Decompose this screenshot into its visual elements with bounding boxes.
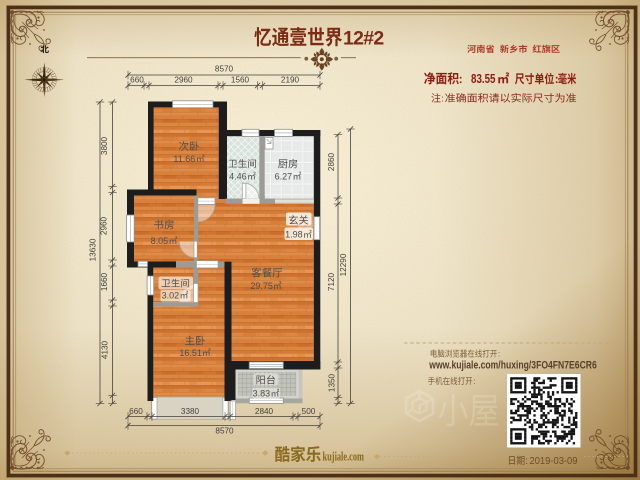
svg-text:2190: 2190 xyxy=(281,76,300,85)
svg-text::: : xyxy=(473,376,475,386)
svg-text:13630: 13630 xyxy=(89,238,98,261)
svg-text:1350: 1350 xyxy=(328,373,337,392)
svg-text:8570: 8570 xyxy=(215,65,234,74)
svg-text:1560: 1560 xyxy=(231,76,250,85)
svg-text:kujiale.com: kujiale.com xyxy=(323,449,365,464)
svg-text:3800: 3800 xyxy=(100,136,109,155)
svg-text::: : xyxy=(525,456,528,467)
svg-text:7120: 7120 xyxy=(327,272,336,291)
svg-text:11.66: 11.66 xyxy=(173,154,195,164)
svg-text:3.83: 3.83 xyxy=(253,389,271,399)
svg-text:2860: 2860 xyxy=(327,152,336,171)
svg-text:3.02: 3.02 xyxy=(162,291,180,301)
svg-text:660: 660 xyxy=(129,407,143,416)
svg-text:29.75: 29.75 xyxy=(250,281,273,291)
svg-text:1.98: 1.98 xyxy=(285,230,303,240)
svg-text:3380: 3380 xyxy=(181,407,200,416)
svg-text:4.46: 4.46 xyxy=(229,172,247,182)
svg-text:83.55: 83.55 xyxy=(471,71,496,86)
svg-text:12290: 12290 xyxy=(339,253,348,276)
svg-text:12#2: 12#2 xyxy=(343,28,384,50)
svg-text:6.27: 6.27 xyxy=(275,172,293,182)
svg-text:2960: 2960 xyxy=(174,76,193,85)
svg-text:2960: 2960 xyxy=(100,216,109,235)
svg-text:16.51: 16.51 xyxy=(179,348,202,358)
svg-text::: : xyxy=(459,74,463,86)
svg-text:4130: 4130 xyxy=(101,340,110,359)
svg-text:500: 500 xyxy=(302,407,316,416)
svg-text:8.05: 8.05 xyxy=(151,236,169,246)
svg-text::: : xyxy=(441,94,444,105)
svg-text:8570: 8570 xyxy=(215,427,234,436)
svg-text:www.kujiale.com/huxing/3FO4FN7: www.kujiale.com/huxing/3FO4FN7E6CR6 xyxy=(428,359,596,371)
svg-text::: : xyxy=(498,349,500,359)
svg-text:2840: 2840 xyxy=(255,407,274,416)
svg-text:660: 660 xyxy=(130,76,144,85)
svg-text:1660: 1660 xyxy=(100,272,109,291)
svg-text:2019-03-09: 2019-03-09 xyxy=(530,456,578,467)
svg-text::: : xyxy=(555,74,559,86)
